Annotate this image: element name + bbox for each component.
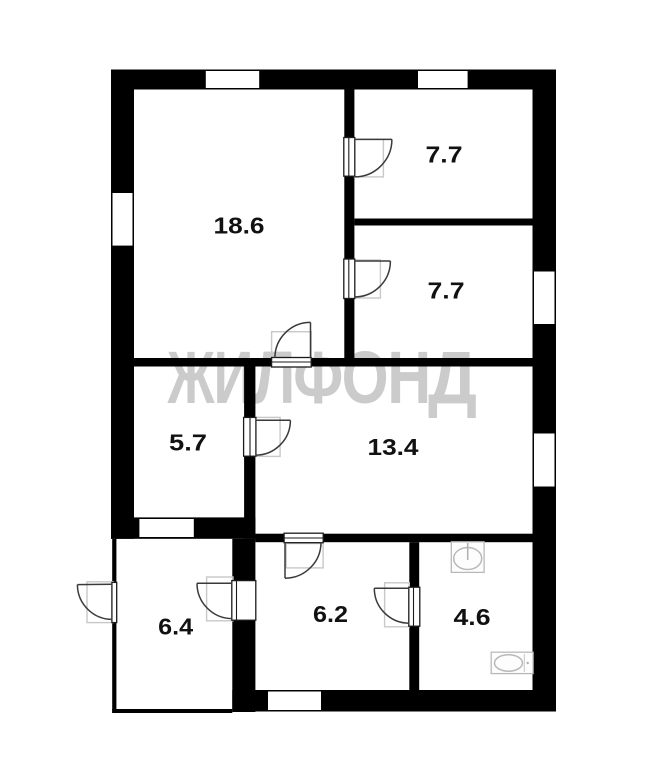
- svg-text:7.7: 7.7: [428, 277, 465, 303]
- svg-text:13.4: 13.4: [368, 434, 419, 460]
- svg-text:Н: Н: [387, 336, 431, 419]
- svg-text:7.7: 7.7: [426, 141, 463, 167]
- svg-text:5.7: 5.7: [169, 429, 207, 455]
- svg-text:6.4: 6.4: [158, 613, 193, 639]
- svg-text:6.2: 6.2: [313, 601, 348, 627]
- svg-text:18.6: 18.6: [214, 212, 265, 238]
- svg-text:4.6: 4.6: [454, 604, 491, 630]
- svg-text:Ф: Ф: [293, 336, 343, 419]
- svg-text:Д: Д: [428, 336, 477, 419]
- svg-text:Ж: Ж: [167, 336, 215, 419]
- svg-text:Л: Л: [253, 336, 295, 419]
